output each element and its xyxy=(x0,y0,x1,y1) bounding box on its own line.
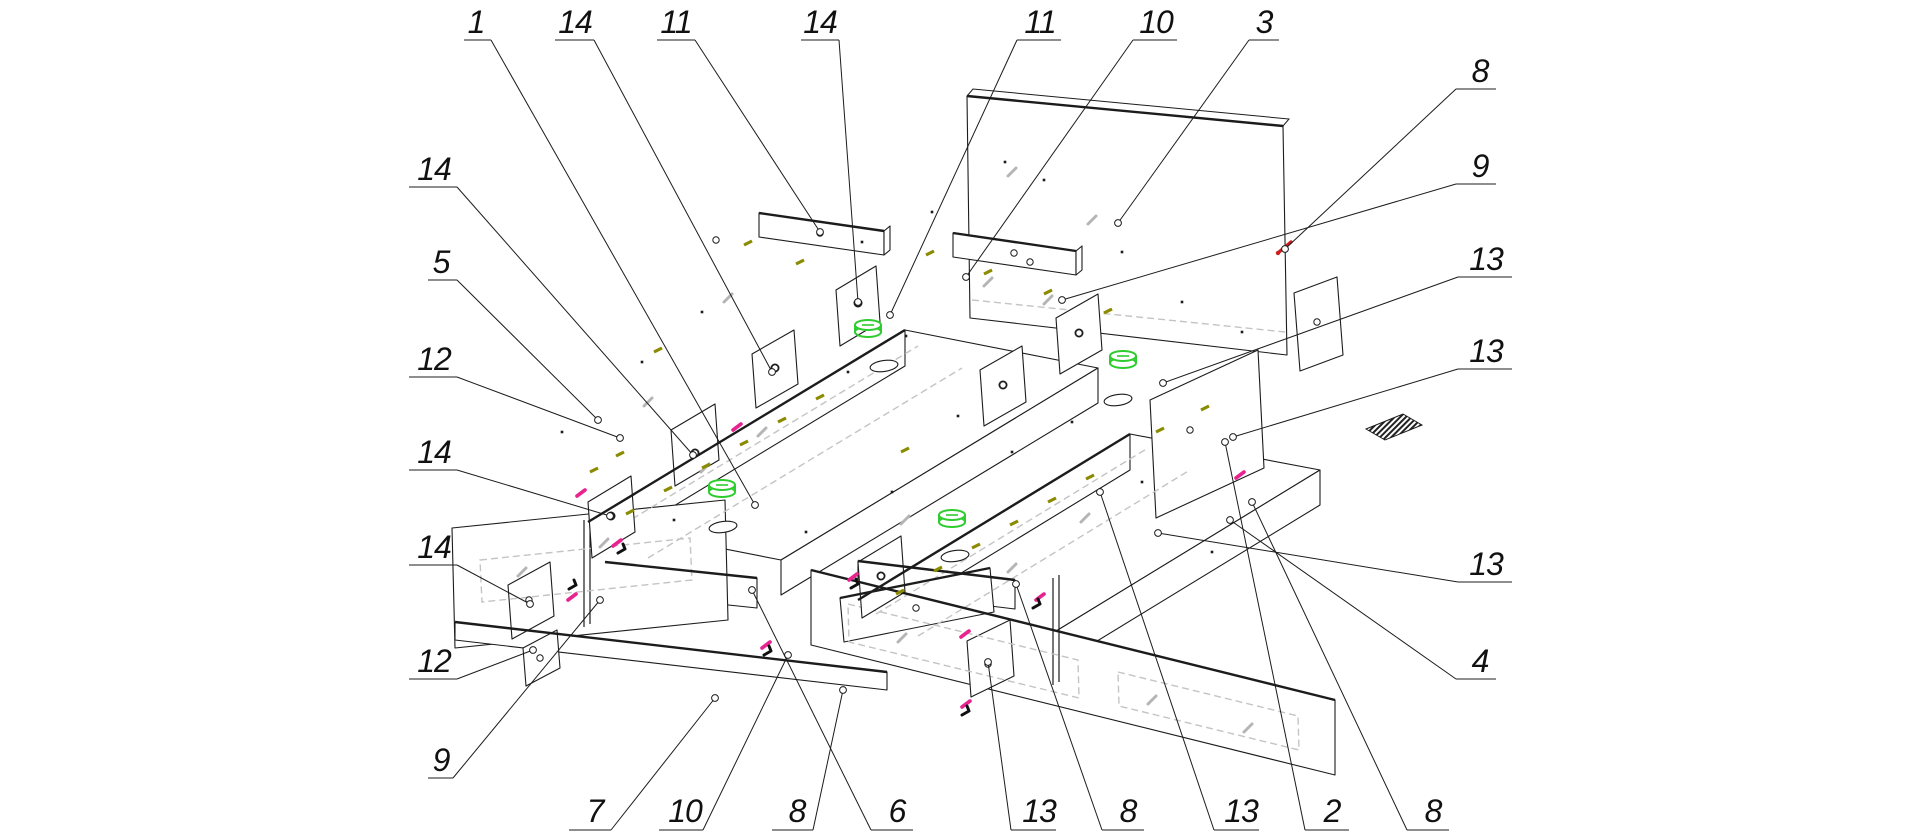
callout-label-6: 6 xyxy=(889,793,907,829)
callout-label-9: 9 xyxy=(433,742,451,778)
callout-target-1 xyxy=(752,502,759,509)
dowel-icon xyxy=(616,452,624,456)
callout-label-13: 13 xyxy=(1469,241,1504,277)
callout-target-11 xyxy=(817,229,824,236)
pilot-hole-dot xyxy=(1071,421,1074,424)
callout-target-14 xyxy=(527,601,534,608)
callout-label-14: 14 xyxy=(558,4,592,40)
callout-leader-13 xyxy=(1233,369,1458,437)
pilot-hole-dot xyxy=(1011,451,1014,454)
callout-leader-1 xyxy=(491,40,755,505)
round-hole xyxy=(1027,259,1033,265)
callout-label-3: 3 xyxy=(1256,4,1274,40)
callout-label-1: 1 xyxy=(468,4,485,40)
callout-target-9 xyxy=(597,597,604,604)
red-screw-icon xyxy=(1276,251,1280,255)
callout-label-12: 12 xyxy=(417,643,452,679)
callout-target-6 xyxy=(749,587,756,594)
pilot-hole-dot xyxy=(1181,301,1184,304)
dowel-icon xyxy=(654,348,662,352)
callout-target-13 xyxy=(985,659,992,666)
callout-leader-12 xyxy=(457,377,620,438)
assembly-diagram: 1141114111038913131341451214141297108613… xyxy=(0,0,1920,835)
callout-target-3 xyxy=(1115,220,1122,227)
callout-label-8: 8 xyxy=(1425,793,1443,829)
pilot-hole-dot xyxy=(1211,551,1214,554)
callout-label-10: 10 xyxy=(1139,4,1174,40)
pilot-hole-dot xyxy=(861,241,864,244)
round-hole xyxy=(1000,382,1006,388)
callout-label-11: 11 xyxy=(1024,4,1055,40)
callout-target-14 xyxy=(607,513,614,520)
callout-target-8 xyxy=(1282,246,1289,253)
callout-label-10: 10 xyxy=(668,793,703,829)
dowel-icon xyxy=(796,260,804,264)
callout-leader-8 xyxy=(1252,502,1407,830)
round-hole xyxy=(537,655,543,661)
dowel-icon xyxy=(590,468,598,472)
pilot-hole-dot xyxy=(805,531,808,534)
callout-target-14 xyxy=(855,299,862,306)
callout-target-2 xyxy=(1222,439,1229,446)
callout-leader-14 xyxy=(839,40,858,302)
callout-target-8 xyxy=(840,687,847,694)
callout-label-4: 4 xyxy=(1472,643,1489,679)
callout-label-14: 14 xyxy=(417,434,451,470)
callout-leader-14 xyxy=(594,40,772,372)
hardware-plate-hatched xyxy=(1366,414,1422,440)
callout-leader-4 xyxy=(1230,520,1456,679)
round-hole xyxy=(1076,330,1082,336)
gray-screw-mark xyxy=(644,398,652,406)
pilot-hole-dot xyxy=(673,519,676,522)
pilot-hole-dot xyxy=(891,491,894,494)
callout-label-14: 14 xyxy=(417,151,451,187)
callout-target-8 xyxy=(1013,581,1020,588)
pilot-hole-dot xyxy=(905,335,908,338)
pilot-hole-dot xyxy=(1241,331,1244,334)
callout-label-5: 5 xyxy=(433,244,451,280)
callout-target-12 xyxy=(617,435,624,442)
pilot-hole-dot xyxy=(1141,481,1144,484)
diagram-root: 1141114111038913131341451214141297108613… xyxy=(409,4,1512,830)
callout-label-13: 13 xyxy=(1469,546,1504,582)
callout-leader-12 xyxy=(457,650,533,679)
callout-leader-5 xyxy=(457,280,598,420)
part-rear-rail-right-cap xyxy=(1076,246,1082,275)
pilot-hole-dot xyxy=(641,361,644,364)
callout-label-7: 7 xyxy=(587,793,606,829)
callout-label-14: 14 xyxy=(417,529,451,565)
callout-label-13: 13 xyxy=(1224,793,1259,829)
callout-leader-14 xyxy=(457,187,693,455)
part-rear-rail-left-cap xyxy=(884,226,890,255)
callout-target-4 xyxy=(1227,517,1234,524)
round-hole xyxy=(713,237,719,243)
pilot-hole-dot xyxy=(561,431,564,434)
dowel-icon xyxy=(744,241,752,245)
round-hole xyxy=(913,605,919,611)
callout-target-13 xyxy=(1160,380,1167,387)
callout-target-12 xyxy=(530,647,537,654)
callout-leader-11 xyxy=(695,40,820,232)
callout-label-12: 12 xyxy=(417,341,452,377)
callout-label-13: 13 xyxy=(1469,333,1504,369)
callout-target-9 xyxy=(1059,297,1066,304)
callout-target-13 xyxy=(1097,489,1104,496)
pilot-hole-dot xyxy=(701,311,704,314)
callout-target-13 xyxy=(1230,434,1237,441)
callout-label-2: 2 xyxy=(1323,793,1342,829)
callout-target-7 xyxy=(712,695,719,702)
callout-label-8: 8 xyxy=(1472,53,1490,89)
callout-target-13 xyxy=(1155,530,1162,537)
pilot-hole-dot xyxy=(847,371,850,374)
callout-target-11 xyxy=(887,312,894,319)
pilot-hole-dot xyxy=(1043,179,1046,182)
callout-leader-14 xyxy=(457,470,610,516)
callout-label-13: 13 xyxy=(1022,793,1057,829)
callout-leader-10 xyxy=(703,655,788,830)
callout-label-9: 9 xyxy=(1472,148,1490,184)
callout-target-8 xyxy=(1249,499,1256,506)
round-hole xyxy=(1187,427,1193,433)
round-hole xyxy=(1314,319,1320,325)
callout-target-5 xyxy=(595,417,602,424)
callout-target-14 xyxy=(769,369,776,376)
callout-label-11: 11 xyxy=(660,4,691,40)
pilot-hole-dot xyxy=(1121,251,1124,254)
callout-target-14 xyxy=(690,452,697,459)
round-hole xyxy=(1011,250,1017,256)
pilot-hole-dot xyxy=(1004,161,1007,164)
callout-label-8: 8 xyxy=(1120,793,1138,829)
oval-hole xyxy=(1103,393,1132,408)
callout-target-10 xyxy=(963,274,970,281)
page: 1141114111038913131341451214141297108613… xyxy=(0,0,1920,835)
callout-label-8: 8 xyxy=(789,793,807,829)
callout-leader-8 xyxy=(1285,89,1456,249)
screw-icon xyxy=(577,490,585,496)
callout-leader-8 xyxy=(813,690,843,830)
pilot-hole-dot xyxy=(931,211,934,214)
round-hole xyxy=(878,573,884,579)
pilot-hole-dot xyxy=(957,415,960,418)
callout-label-14: 14 xyxy=(803,4,837,40)
dowel-icon xyxy=(926,251,934,255)
